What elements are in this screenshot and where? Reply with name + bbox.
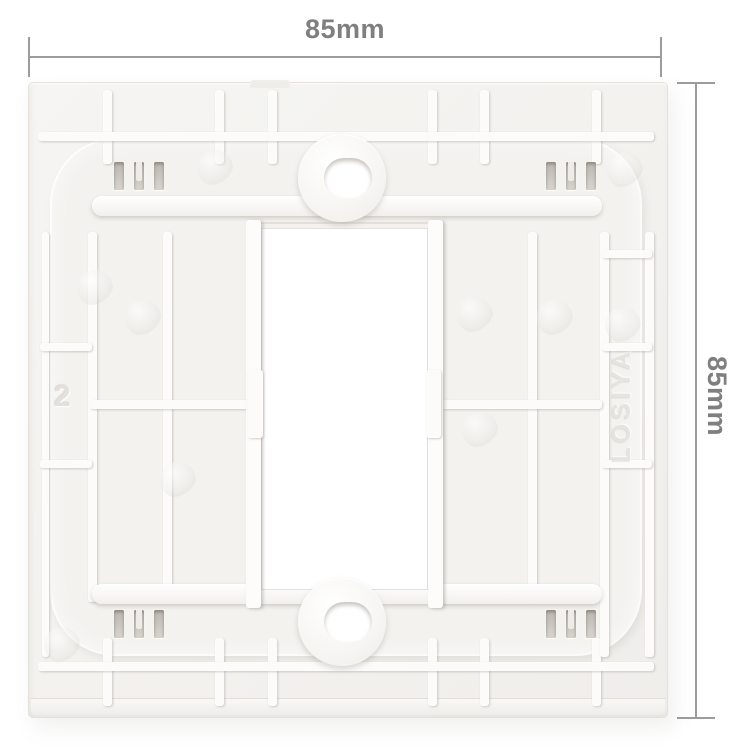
ejector-pin-mark bbox=[462, 412, 498, 448]
clip-slot bbox=[586, 610, 596, 638]
rib-vertical bbox=[163, 232, 172, 602]
plate-bottom-bevel bbox=[31, 698, 665, 715]
rib-vertical bbox=[480, 90, 489, 164]
embossed-brand-text: LOSIYA bbox=[608, 320, 638, 490]
clip-slot bbox=[566, 162, 576, 190]
rib-vertical bbox=[42, 232, 49, 657]
width-dimension-line bbox=[28, 56, 662, 58]
clip-slot bbox=[586, 162, 596, 190]
rib-vertical bbox=[268, 638, 277, 706]
screw-hole-top bbox=[324, 158, 372, 198]
height-dimension-label: 85mm bbox=[704, 356, 732, 436]
rib-vertical bbox=[645, 232, 654, 657]
clip-slot bbox=[154, 610, 164, 638]
rib-horizontal bbox=[90, 400, 250, 409]
ejector-pin-mark bbox=[77, 270, 113, 306]
ejector-pin-mark bbox=[607, 152, 643, 188]
wall-plate-back: 2 LOSIYA bbox=[28, 82, 668, 718]
rib-vertical bbox=[480, 638, 489, 706]
rib-vertical bbox=[215, 638, 224, 706]
width-dimension-tick-right bbox=[660, 37, 662, 77]
rib-vertical bbox=[428, 90, 437, 164]
rib-vertical bbox=[528, 232, 537, 602]
rib-vertical bbox=[428, 638, 437, 706]
rib-horizontal bbox=[40, 460, 92, 468]
ejector-pin-mark bbox=[197, 150, 233, 186]
height-dimension-line bbox=[695, 82, 697, 719]
opening-edge-line bbox=[246, 222, 443, 224]
ejector-pin-mark bbox=[160, 462, 196, 498]
rib-horizontal bbox=[440, 400, 602, 409]
center-module-opening bbox=[261, 228, 428, 590]
product-image: 85mm 85mm bbox=[0, 0, 750, 750]
ejector-pin-mark bbox=[44, 627, 80, 663]
clip-latch bbox=[568, 610, 574, 629]
width-dimension-tick-left bbox=[28, 37, 30, 77]
clip-slot bbox=[154, 162, 164, 190]
rib-horizontal bbox=[40, 343, 92, 351]
clip-latch bbox=[568, 162, 574, 181]
latch-tab-left bbox=[248, 370, 263, 438]
height-dimension-tick-bottom bbox=[677, 717, 715, 719]
rib-vertical bbox=[103, 638, 112, 706]
clip-slot bbox=[134, 162, 144, 190]
ejector-pin-mark bbox=[537, 300, 573, 336]
rib-horizontal bbox=[602, 250, 652, 258]
latch-tab-right bbox=[426, 370, 441, 438]
rib-vertical bbox=[592, 90, 601, 164]
clip-latch bbox=[136, 610, 142, 629]
width-dimension-label: 85mm bbox=[28, 14, 662, 45]
clip-slot bbox=[114, 610, 124, 638]
clip-slot bbox=[546, 162, 556, 190]
height-dimension-tick-top bbox=[677, 82, 715, 84]
clip-slot bbox=[546, 610, 556, 638]
ejector-pin-mark bbox=[125, 300, 161, 336]
ejector-pin-mark bbox=[457, 297, 493, 333]
clip-slot bbox=[114, 162, 124, 190]
clip-slot bbox=[566, 610, 576, 638]
screw-hole-bottom bbox=[324, 602, 372, 642]
clip-slot bbox=[134, 610, 144, 638]
rib-vertical bbox=[103, 90, 112, 164]
plate-top-tab bbox=[250, 79, 290, 88]
rib-vertical bbox=[268, 90, 277, 164]
clip-latch bbox=[136, 162, 142, 181]
embossed-mold-number: 2 bbox=[54, 380, 71, 414]
